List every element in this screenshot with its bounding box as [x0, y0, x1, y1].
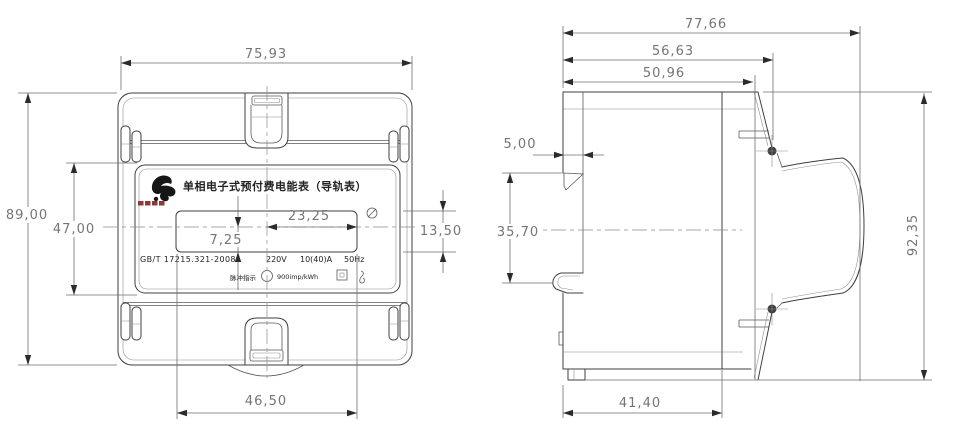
dim-text-overall-width: 75,93 [245, 47, 287, 62]
dim-text-lcd-half-width: 23,25 [288, 209, 330, 224]
dim-text-backgrounds [4, 207, 922, 259]
dim-text-cover-depth: 50,96 [643, 66, 685, 81]
pulse-rate: 900imp/kWh [277, 273, 318, 281]
voltage-text: 220V [266, 255, 287, 264]
dim-text-terminal-depth: 56,63 [652, 44, 694, 59]
brand-tiny-text-marks [138, 201, 165, 206]
dimension-texts: 75,93 89,00 47,00 23,25 7,25 13,50 46,50… [6, 17, 921, 411]
dim-side-overall-depth [563, 26, 860, 381]
dim-text-base-depth: 41,40 [619, 396, 661, 411]
corner-clips [121, 126, 409, 340]
current-text: 10(40)A [300, 255, 333, 264]
dim-text-rail-span: 35,70 [497, 225, 539, 240]
drawing-canvas: 单相电子式预付费电能表（导轨表） GB/T 17215.321-2008 220… [0, 0, 961, 444]
dim-text-overall-height: 89,00 [6, 208, 48, 223]
brand-logo-icon [138, 176, 175, 206]
nameplate: 单相电子式预付费电能表（导轨表） GB/T 17215.321-2008 220… [135, 165, 400, 293]
engineering-drawing: 单相电子式预付费电能表（导轨表） GB/T 17215.321-2008 220… [0, 0, 961, 444]
dim-text-lcd-offset: 7,25 [210, 233, 243, 248]
front-view: 单相电子式预付费电能表（导轨表） GB/T 17215.321-2008 220… [118, 93, 412, 376]
top-seal-tab [245, 93, 288, 148]
dim-text-overall-depth: 77,66 [685, 17, 727, 32]
dim-text-lcd-width: 46,50 [245, 394, 287, 409]
hook-symbol-icon [360, 271, 365, 283]
dim-text-label-height: 47,00 [53, 222, 95, 237]
corner-clip [132, 307, 141, 340]
dim-text-rail-notch: 5,00 [504, 137, 537, 152]
bottom-foot [568, 369, 585, 380]
front-bulge [841, 158, 864, 293]
corner-clip [389, 131, 398, 162]
dim-side-overall-height [585, 92, 932, 380]
din-latch-tab [228, 318, 304, 376]
corner-clip [389, 307, 398, 340]
rail-hook [564, 173, 583, 190]
dim-side-cover-depth [563, 75, 755, 380]
side-view [553, 92, 864, 380]
dim-lcd-half-width [267, 224, 357, 230]
latch-finger-arc [228, 365, 304, 376]
meter-title: 单相电子式预付费电能表（导轨表） [183, 179, 367, 193]
corner-clip [400, 303, 409, 340]
dim-rail-notch-depth [533, 152, 604, 158]
frequency-text: 50Hz [344, 255, 364, 264]
corner-clip [121, 303, 130, 340]
corner-clip [132, 131, 141, 162]
standard-text: GB/T 17215.321-2008 [140, 255, 236, 264]
class-ii-insulation-icon [337, 270, 347, 280]
phi-icon [367, 208, 377, 218]
dim-text-side-height: 92,35 [906, 214, 921, 256]
dim-text-lcd-height: 13,50 [420, 224, 462, 239]
pulse-caption: 脉冲指示 [230, 273, 257, 282]
